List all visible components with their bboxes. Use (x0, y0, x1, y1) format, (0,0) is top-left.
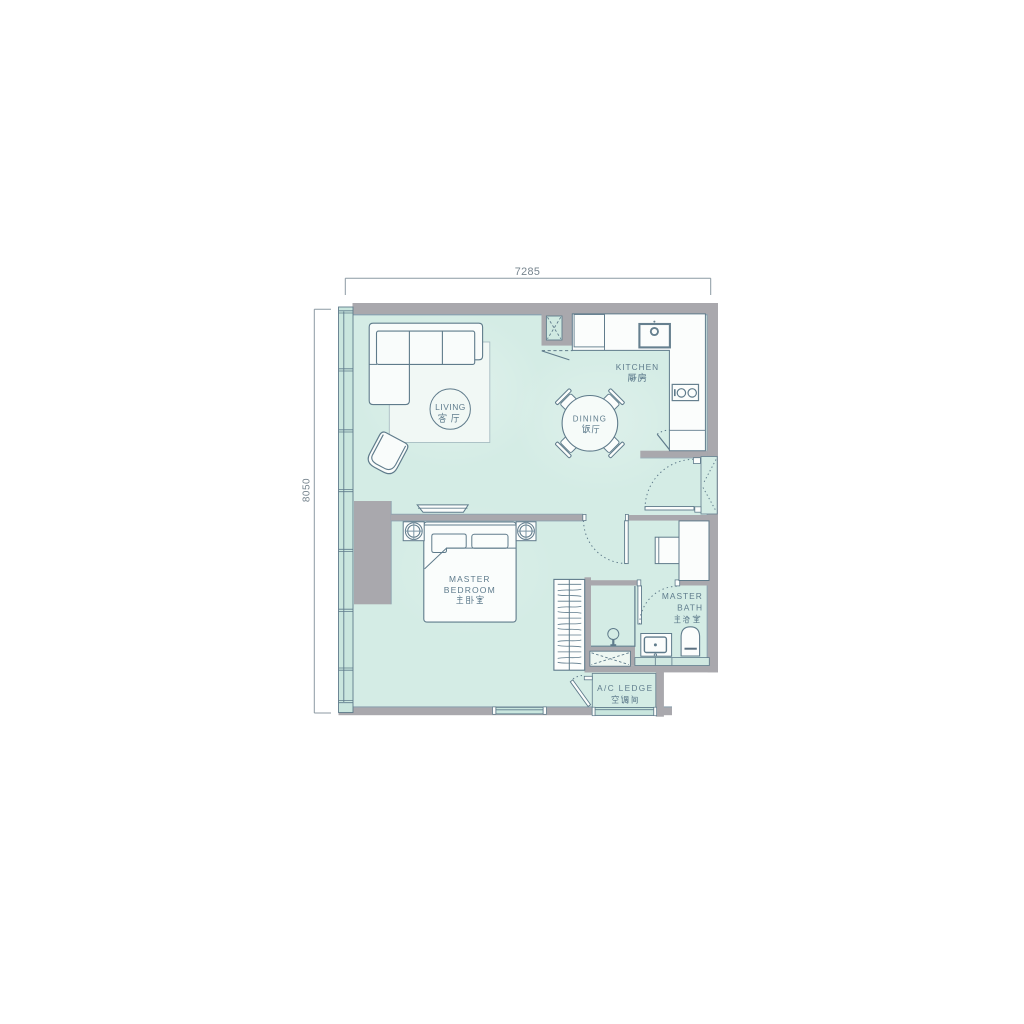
svg-text:LIVING: LIVING (435, 402, 466, 412)
svg-text:8050: 8050 (302, 478, 313, 502)
svg-text:KITCHEN: KITCHEN (616, 362, 659, 372)
svg-text:BATH: BATH (677, 602, 703, 612)
svg-text:7285: 7285 (515, 266, 541, 278)
svg-text:A/C LEDGE: A/C LEDGE (597, 684, 653, 693)
svg-text:DINING: DINING (573, 415, 607, 424)
svg-text:MASTER: MASTER (449, 574, 491, 584)
svg-text:MASTER: MASTER (662, 591, 703, 601)
svg-text:BEDROOM: BEDROOM (444, 585, 496, 595)
